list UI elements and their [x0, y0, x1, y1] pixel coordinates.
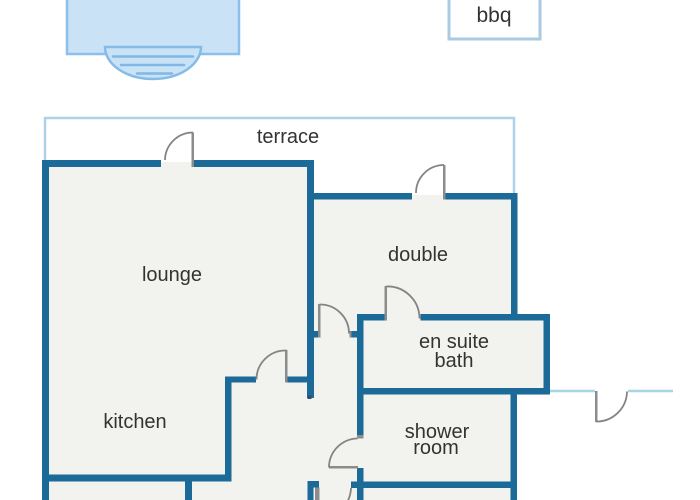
svg-text:bath: bath	[435, 350, 474, 372]
svg-text:bbq: bbq	[476, 4, 511, 27]
svg-text:kitchen: kitchen	[103, 411, 166, 433]
svg-text:lounge: lounge	[142, 264, 202, 286]
svg-text:terrace: terrace	[257, 126, 319, 148]
svg-text:double: double	[388, 244, 448, 266]
svg-text:room: room	[413, 437, 459, 459]
